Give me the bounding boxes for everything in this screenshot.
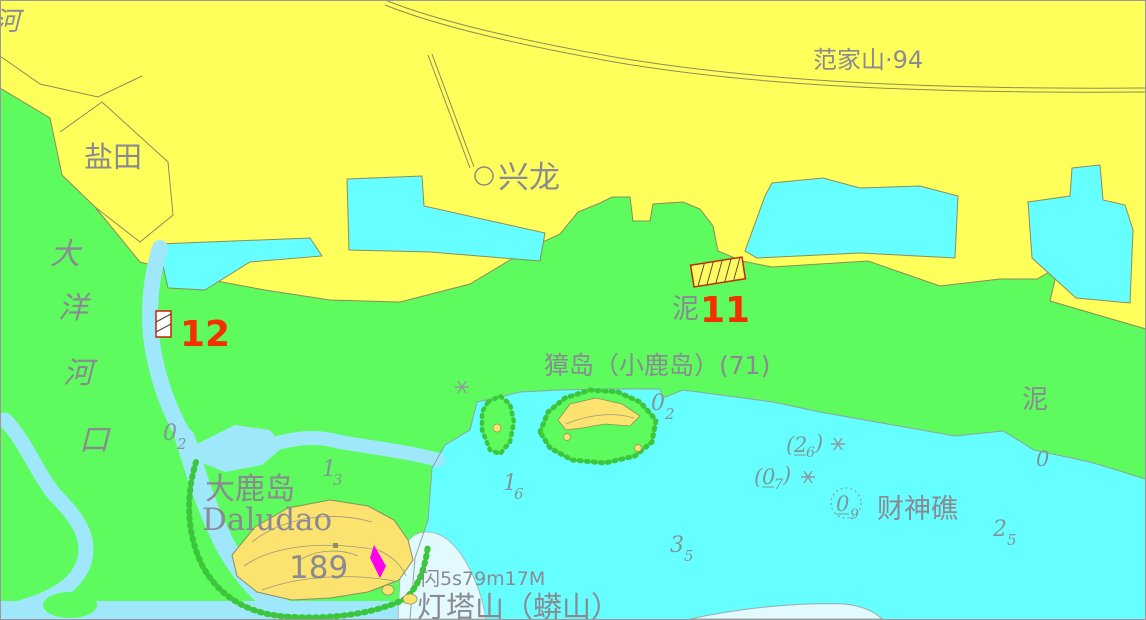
estuary-char: 口 — [79, 423, 111, 458]
sounding-sub: 6 — [514, 485, 524, 503]
sounding-sub: 5 — [684, 547, 694, 565]
estuary-char: 洋 — [58, 291, 91, 326]
tidal-flat-islet — [43, 592, 97, 618]
estuary-char: 河 — [63, 356, 98, 391]
daludao-building — [333, 543, 338, 548]
mud-left-label: 泥 — [672, 294, 699, 325]
zhangdao-patch — [635, 445, 642, 452]
sounding-sub: 2 — [176, 435, 187, 453]
daludao-patch — [403, 594, 417, 604]
daludao-en-label: Daludao — [202, 502, 332, 538]
sounding-sub: 5 — [1007, 531, 1017, 549]
daludao-elevation-label: 189 — [289, 550, 348, 586]
nautical-chart-canvas[interactable]: 范家山·94 盐田 兴龙 河 大 洋 河 口 獐岛（小鹿岛）(71) 泥 大鹿岛… — [0, 0, 1146, 620]
zhangdao-patch — [564, 434, 571, 441]
drying-main: 0 — [836, 492, 849, 516]
chart-map[interactable]: 范家山·94 盐田 兴龙 河 大 洋 河 口 獐岛（小鹿岛）(71) 泥 大鹿岛… — [0, 0, 1146, 620]
coastal-basin — [745, 178, 958, 258]
reef-name-label: 财神礁 — [877, 494, 958, 525]
estuary-char: 大 — [50, 237, 83, 272]
paren-close: ) — [814, 431, 823, 455]
sounding-main: 3 — [670, 533, 684, 558]
drying-sub: 6 — [806, 445, 815, 461]
berth-11-number: 11 — [700, 290, 750, 331]
hill-label: 范家山·94 — [813, 46, 923, 74]
sounding-sub: 3 — [333, 471, 343, 489]
lighthouse-label: 灯塔山（蟒山） — [417, 590, 620, 620]
drying-sub: 9 — [850, 507, 859, 523]
drying-sub: 7 — [774, 477, 783, 493]
village-circle-icon — [475, 167, 493, 185]
sounding-main: 2 — [992, 517, 1007, 542]
daludao-patch — [382, 585, 394, 595]
paren-close: ) — [782, 463, 791, 487]
sounding-main: 0 — [651, 391, 665, 416]
sounding-sub: 2 — [664, 405, 675, 423]
berth-12-number: 12 — [180, 314, 230, 355]
mud-right-label: 泥 — [1022, 385, 1048, 415]
contour-zero-label: 0 — [1036, 447, 1049, 471]
salt-field-label: 盐田 — [84, 140, 142, 174]
island-main-label: 獐岛（小鹿岛）(71) — [544, 351, 770, 380]
light-characteristic-label: 闪5s79m17M — [421, 568, 545, 590]
sounding-main: 0 — [163, 421, 177, 446]
berth-12-symbol — [156, 311, 171, 337]
islet-patch — [493, 424, 501, 432]
village-label: 兴龙 — [498, 160, 560, 196]
